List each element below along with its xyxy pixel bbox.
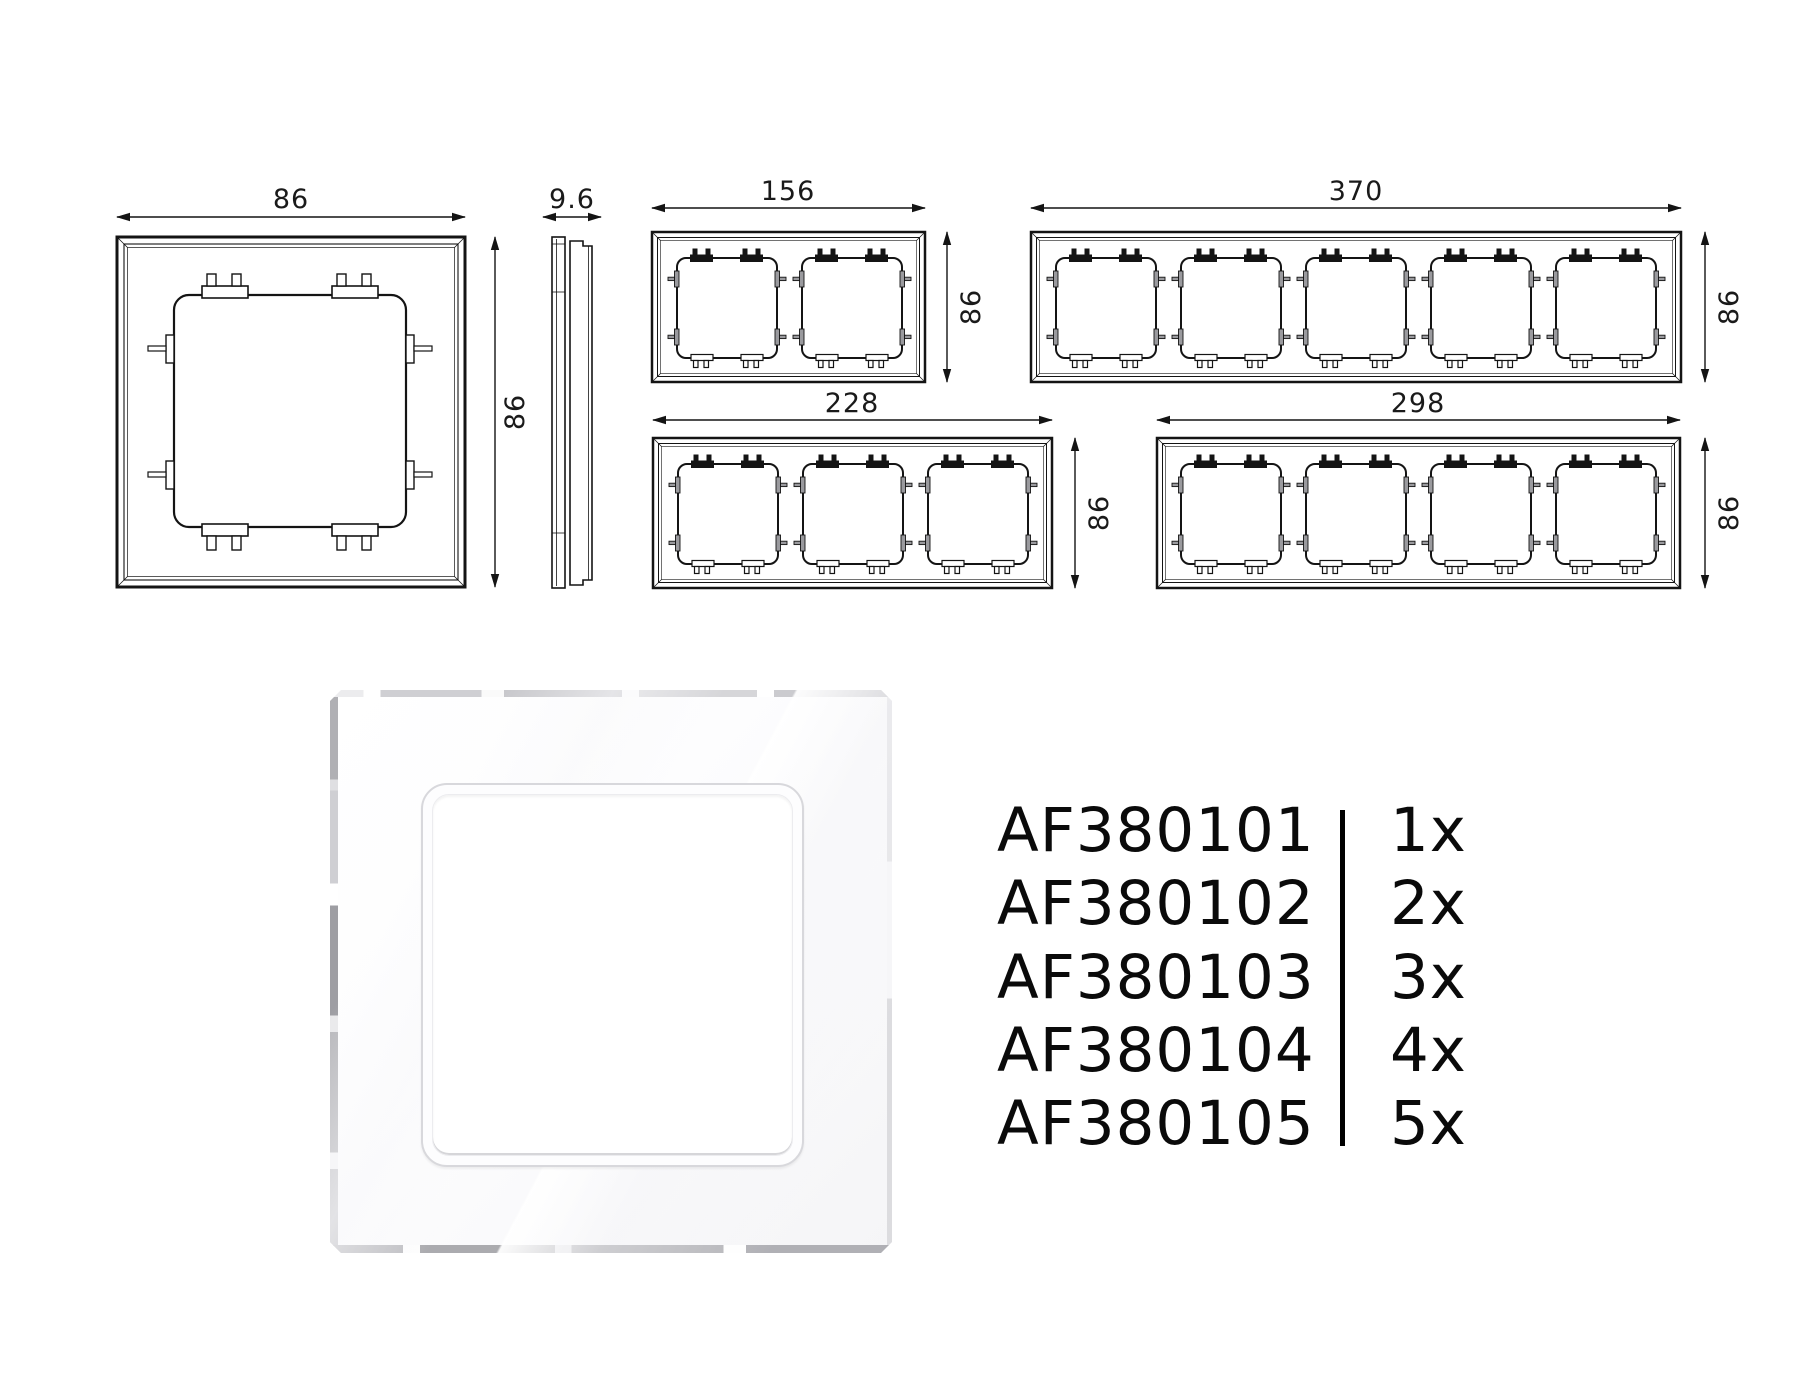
dimension-width-label: 228: [825, 388, 880, 419]
dimension-width-label: 156: [761, 176, 816, 207]
gang-quantity: 5x: [1390, 1087, 1467, 1160]
gang-quantity: 3x: [1390, 941, 1467, 1014]
table-divider: [1340, 810, 1345, 1146]
frame-5gang-drawing: 370 86: [1031, 176, 1745, 382]
dimension-depth-label: 9.6: [549, 184, 595, 215]
dimension-height-label: 86: [956, 289, 987, 325]
render-top-edge: [330, 690, 892, 697]
part-number-list: AF380101 AF380102 AF380103 AF380104 AF38…: [997, 794, 1315, 1160]
render-opening-bezel: [421, 783, 804, 1167]
part-code: AF380104: [997, 1014, 1315, 1087]
gang-quantity-list: 1x 2x 3x 4x 5x: [1390, 794, 1467, 1160]
gang-quantity: 4x: [1390, 1014, 1467, 1087]
render-right-edge: [887, 697, 892, 1245]
frame-4gang-drawing: 298 86: [1157, 388, 1745, 588]
dimension-height-label: 86: [1084, 495, 1115, 531]
dimension-height-label: 86: [1714, 289, 1745, 325]
gang-quantity: 2x: [1390, 867, 1467, 940]
frame-3gang-drawing: 228 86: [653, 388, 1115, 588]
part-code: AF380101: [997, 794, 1315, 867]
part-code: AF380102: [997, 867, 1315, 940]
dimension-height-label: 86: [500, 394, 531, 430]
render-left-edge: [330, 697, 338, 1246]
technical-drawings: 86 86 9.6 156 86: [0, 140, 1800, 640]
dimension-height-label: 86: [1714, 495, 1745, 531]
frame-2gang-drawing: 156 86: [652, 176, 987, 382]
part-code: AF380103: [997, 941, 1315, 1014]
render-bottom-edge: [330, 1245, 892, 1253]
render-opening: [432, 794, 793, 1156]
gang-quantity: 1x: [1390, 794, 1467, 867]
dimension-width-label: 86: [273, 184, 309, 215]
product-render-single-frame: [330, 690, 892, 1253]
side-profile-drawing: 9.6: [543, 184, 601, 588]
single-frame-front-drawing: 86 86: [117, 184, 531, 587]
part-code: AF380105: [997, 1087, 1315, 1160]
dimension-width-label: 298: [1391, 388, 1446, 419]
dimension-width-label: 370: [1329, 176, 1384, 207]
